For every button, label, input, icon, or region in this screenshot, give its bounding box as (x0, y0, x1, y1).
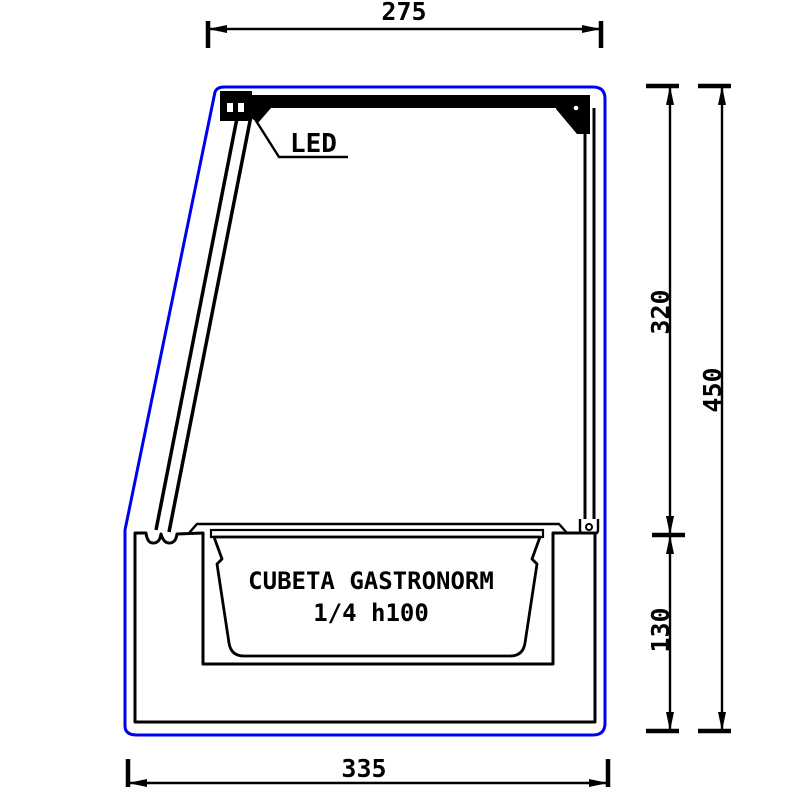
front-glass-slanted (156, 113, 251, 532)
rear-glass-foot-pin (586, 524, 592, 530)
canopy-top-bar (222, 95, 588, 108)
dimension-right-450: 450 (698, 86, 727, 731)
led-fixture-slot (227, 103, 233, 112)
dim-arrow-left (128, 779, 147, 787)
dim-arrow-down (666, 516, 674, 535)
led-fixture-slot (238, 103, 244, 112)
dim-label-top-width: 275 (381, 0, 426, 26)
dim-arrow-up (666, 86, 674, 105)
dim-arrow-up (718, 86, 726, 105)
dim-label-glass-height: 320 (646, 289, 675, 334)
dim-arrow-right (589, 779, 608, 787)
dim-arrow-down (718, 712, 726, 731)
dim-arrow-down (666, 712, 674, 731)
dim-label-base-height: 130 (646, 607, 675, 652)
display-case-section-drawing: 275 320 130 450 (0, 0, 800, 800)
tub-label-line2: 1/4 h100 (313, 599, 429, 627)
tub-label-line1: CUBETA GASTRONORM (248, 567, 494, 595)
cad-drawing-page: 275 320 130 450 (0, 0, 800, 800)
gastronorm-tub-outline (214, 537, 540, 656)
dim-arrow-right (582, 25, 601, 33)
dimension-right-130: 130 (646, 535, 675, 731)
dimension-bottom-335: 335 (128, 754, 608, 787)
dim-arrow-up (666, 535, 674, 554)
front-glass-inner-line (169, 116, 251, 532)
dimension-right-320: 320 (646, 86, 675, 535)
dim-arrow-left (208, 25, 227, 33)
rear-glass-vertical (585, 108, 594, 521)
dim-label-base-width: 335 (341, 754, 386, 783)
bracket-screw-hole (574, 106, 579, 111)
led-label: LED (290, 129, 337, 159)
dim-label-total-height: 450 (698, 367, 727, 412)
dimension-top-275: 275 (208, 0, 601, 48)
